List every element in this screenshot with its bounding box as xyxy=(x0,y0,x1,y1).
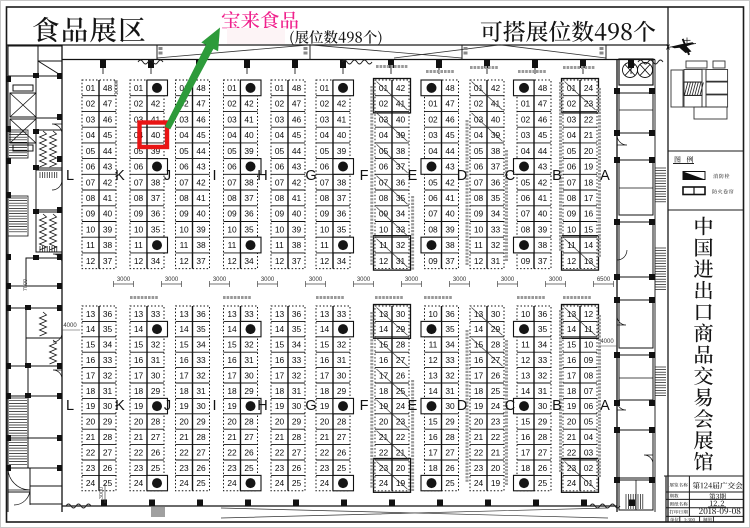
svg-text:23: 23 xyxy=(275,463,285,473)
svg-text:03: 03 xyxy=(320,114,330,124)
svg-text:42: 42 xyxy=(491,83,501,93)
svg-text:42: 42 xyxy=(538,177,548,187)
svg-text:17: 17 xyxy=(521,447,531,457)
svg-text:44: 44 xyxy=(103,146,113,156)
svg-text:34: 34 xyxy=(445,340,455,350)
svg-text:12: 12 xyxy=(134,256,144,266)
svg-text:42: 42 xyxy=(244,99,254,109)
svg-text:07: 07 xyxy=(227,177,237,187)
svg-text:06: 06 xyxy=(521,193,531,203)
svg-text:38: 38 xyxy=(244,177,254,187)
svg-text:02: 02 xyxy=(86,99,96,109)
svg-text:34: 34 xyxy=(491,209,501,219)
svg-text:25: 25 xyxy=(491,386,501,396)
svg-text:14: 14 xyxy=(275,324,285,334)
svg-text:05: 05 xyxy=(86,146,96,156)
svg-text:13: 13 xyxy=(134,309,144,319)
svg-text:36: 36 xyxy=(196,309,206,319)
svg-text:31: 31 xyxy=(538,386,548,396)
svg-text:18: 18 xyxy=(227,386,237,396)
svg-text:12: 12 xyxy=(379,256,389,266)
svg-text:13: 13 xyxy=(86,309,96,319)
svg-text:43: 43 xyxy=(538,162,548,172)
svg-text:33: 33 xyxy=(151,309,161,319)
svg-text:36: 36 xyxy=(244,209,254,219)
svg-text:20: 20 xyxy=(396,463,406,473)
svg-text:34: 34 xyxy=(337,256,347,266)
svg-text:37: 37 xyxy=(337,193,347,203)
svg-text:35: 35 xyxy=(337,224,347,234)
svg-text:03: 03 xyxy=(179,114,189,124)
svg-text:24: 24 xyxy=(584,83,594,93)
svg-text:36: 36 xyxy=(337,209,347,219)
svg-text:24: 24 xyxy=(134,478,144,488)
svg-text:17: 17 xyxy=(320,370,330,380)
svg-text:22: 22 xyxy=(275,447,285,457)
svg-text:31: 31 xyxy=(292,386,302,396)
svg-text:01: 01 xyxy=(428,99,438,109)
svg-text:15: 15 xyxy=(428,417,438,427)
svg-text:20: 20 xyxy=(320,417,330,427)
svg-text:22: 22 xyxy=(320,447,330,457)
svg-text:25: 25 xyxy=(196,478,206,488)
svg-text:23: 23 xyxy=(474,463,484,473)
svg-text:07: 07 xyxy=(179,177,189,187)
svg-text:11: 11 xyxy=(320,240,329,250)
svg-text:10000: 10000 xyxy=(114,80,120,95)
svg-text:24: 24 xyxy=(491,401,501,411)
svg-text:16: 16 xyxy=(584,209,594,219)
svg-text:47: 47 xyxy=(538,99,548,109)
svg-text:11: 11 xyxy=(521,340,530,350)
svg-text:01: 01 xyxy=(320,83,330,93)
svg-text:33: 33 xyxy=(445,355,455,365)
svg-text:03: 03 xyxy=(275,114,285,124)
svg-text:12: 12 xyxy=(474,256,484,266)
svg-text:22: 22 xyxy=(567,447,577,457)
svg-text:A: A xyxy=(600,398,610,414)
svg-text:17: 17 xyxy=(134,370,144,380)
svg-text:45: 45 xyxy=(196,130,206,140)
svg-text:J: J xyxy=(164,168,171,184)
svg-text:24: 24 xyxy=(474,478,484,488)
svg-text:30: 30 xyxy=(244,370,254,380)
svg-text:26: 26 xyxy=(292,463,302,473)
svg-text:16: 16 xyxy=(474,355,484,365)
svg-text:28: 28 xyxy=(491,340,501,350)
svg-text:07: 07 xyxy=(86,177,96,187)
svg-text:03: 03 xyxy=(584,447,594,457)
svg-text:22: 22 xyxy=(584,114,594,124)
svg-text:28: 28 xyxy=(103,432,113,442)
svg-text:13: 13 xyxy=(227,309,237,319)
svg-text:14: 14 xyxy=(428,386,438,396)
svg-text:21: 21 xyxy=(227,432,237,442)
svg-text:37: 37 xyxy=(196,256,206,266)
svg-text:10: 10 xyxy=(134,224,144,234)
svg-text:33: 33 xyxy=(292,355,302,365)
svg-text:18: 18 xyxy=(179,386,189,396)
svg-text:25: 25 xyxy=(103,478,113,488)
svg-text:24: 24 xyxy=(86,478,96,488)
svg-text:19: 19 xyxy=(584,162,594,172)
svg-text:05: 05 xyxy=(179,146,189,156)
svg-text:15: 15 xyxy=(567,340,577,350)
svg-text:17: 17 xyxy=(428,447,438,457)
svg-text:32: 32 xyxy=(337,340,347,350)
svg-text:21: 21 xyxy=(567,432,577,442)
svg-text:6500: 6500 xyxy=(597,277,611,283)
svg-text:07: 07 xyxy=(567,177,577,187)
svg-text:40: 40 xyxy=(396,114,406,124)
svg-text:31: 31 xyxy=(244,355,254,365)
svg-text:08: 08 xyxy=(227,193,237,203)
svg-text:31: 31 xyxy=(491,256,501,266)
svg-text:27: 27 xyxy=(151,432,161,442)
svg-text:05: 05 xyxy=(521,177,531,187)
svg-text:08: 08 xyxy=(474,193,484,203)
svg-text:13: 13 xyxy=(320,309,330,319)
svg-text:38: 38 xyxy=(196,240,206,250)
svg-text:08: 08 xyxy=(584,370,594,380)
svg-text:05: 05 xyxy=(474,146,484,156)
svg-text:18: 18 xyxy=(134,386,144,396)
svg-text:28: 28 xyxy=(151,417,161,427)
svg-text:16: 16 xyxy=(86,355,96,365)
svg-text:13: 13 xyxy=(428,370,438,380)
svg-text:37: 37 xyxy=(445,256,455,266)
svg-text:30: 30 xyxy=(445,401,455,411)
svg-text:04: 04 xyxy=(379,130,389,140)
svg-text:02: 02 xyxy=(584,463,594,473)
svg-text:27: 27 xyxy=(292,447,302,457)
svg-text:31: 31 xyxy=(445,386,455,396)
svg-text:11: 11 xyxy=(134,240,143,250)
svg-text:33: 33 xyxy=(337,309,347,319)
svg-text:D: D xyxy=(457,168,467,184)
svg-text:04: 04 xyxy=(227,130,237,140)
svg-text:27: 27 xyxy=(538,447,548,457)
svg-text:11: 11 xyxy=(86,240,95,250)
svg-text:32: 32 xyxy=(396,240,406,250)
svg-text:34: 34 xyxy=(538,340,548,350)
svg-text:10: 10 xyxy=(379,224,389,234)
svg-text:27: 27 xyxy=(445,447,455,457)
svg-text:07: 07 xyxy=(428,209,438,219)
svg-text:14: 14 xyxy=(134,324,144,334)
svg-text:10: 10 xyxy=(567,224,577,234)
svg-text:10: 10 xyxy=(584,340,594,350)
svg-text:27: 27 xyxy=(196,447,206,457)
svg-text:36: 36 xyxy=(396,177,406,187)
svg-text:11: 11 xyxy=(275,240,284,250)
svg-text:39: 39 xyxy=(337,146,347,156)
svg-text:3000: 3000 xyxy=(453,277,467,283)
svg-text:44: 44 xyxy=(292,146,302,156)
svg-text:07: 07 xyxy=(521,209,531,219)
svg-text:30: 30 xyxy=(151,370,161,380)
svg-text:28: 28 xyxy=(445,432,455,442)
svg-text:17: 17 xyxy=(567,370,577,380)
svg-text:01: 01 xyxy=(227,83,237,93)
svg-text:20: 20 xyxy=(567,417,577,427)
svg-text:02: 02 xyxy=(428,114,438,124)
svg-text:7000: 7000 xyxy=(23,279,29,291)
svg-text:30: 30 xyxy=(292,401,302,411)
svg-text:30: 30 xyxy=(196,401,206,411)
svg-text:20: 20 xyxy=(227,417,237,427)
svg-text:34: 34 xyxy=(103,340,113,350)
svg-text:23: 23 xyxy=(491,417,501,427)
svg-text:33: 33 xyxy=(244,309,254,319)
svg-text:04: 04 xyxy=(521,146,531,156)
svg-text:32: 32 xyxy=(491,240,501,250)
svg-text:14: 14 xyxy=(179,324,189,334)
svg-text:23: 23 xyxy=(179,463,189,473)
svg-text:20: 20 xyxy=(584,146,594,156)
svg-text:38: 38 xyxy=(151,177,161,187)
svg-text:03: 03 xyxy=(521,130,531,140)
svg-text:18: 18 xyxy=(584,177,594,187)
svg-text:40: 40 xyxy=(538,209,548,219)
svg-text:19: 19 xyxy=(134,401,144,411)
svg-text:08: 08 xyxy=(428,224,438,234)
svg-text:27: 27 xyxy=(337,432,347,442)
svg-text:23: 23 xyxy=(227,463,237,473)
svg-text:31: 31 xyxy=(103,386,113,396)
svg-text:33: 33 xyxy=(538,355,548,365)
svg-text:28: 28 xyxy=(337,417,347,427)
svg-text:06: 06 xyxy=(379,162,389,172)
svg-text:48: 48 xyxy=(103,83,113,93)
svg-text:3000: 3000 xyxy=(549,277,563,283)
svg-text:14: 14 xyxy=(584,240,594,250)
svg-text:28: 28 xyxy=(196,432,206,442)
svg-text:39: 39 xyxy=(538,224,548,234)
svg-text:09: 09 xyxy=(428,256,438,266)
svg-text:36: 36 xyxy=(103,309,113,319)
svg-text:24: 24 xyxy=(275,478,285,488)
svg-text:32: 32 xyxy=(292,370,302,380)
svg-text:02: 02 xyxy=(567,99,577,109)
svg-text:28: 28 xyxy=(538,432,548,442)
svg-text:22: 22 xyxy=(227,447,237,457)
svg-text:33: 33 xyxy=(103,355,113,365)
svg-text:09: 09 xyxy=(474,209,484,219)
svg-text:32: 32 xyxy=(103,370,113,380)
svg-text:04: 04 xyxy=(584,432,594,442)
svg-text:02: 02 xyxy=(320,99,330,109)
svg-text:36: 36 xyxy=(491,177,501,187)
svg-text:40: 40 xyxy=(244,130,254,140)
svg-text:34: 34 xyxy=(292,340,302,350)
svg-text:37: 37 xyxy=(103,256,113,266)
svg-text:46: 46 xyxy=(445,114,455,124)
svg-text:18: 18 xyxy=(521,463,531,473)
svg-text:18: 18 xyxy=(86,386,96,396)
svg-text:31: 31 xyxy=(337,355,347,365)
svg-text:10: 10 xyxy=(179,224,189,234)
svg-text:4000: 4000 xyxy=(600,339,614,345)
svg-text:12: 12 xyxy=(227,256,237,266)
svg-text:17: 17 xyxy=(584,193,594,203)
svg-text:23: 23 xyxy=(320,463,330,473)
svg-text:06: 06 xyxy=(320,162,330,172)
svg-text:A: A xyxy=(600,168,610,184)
svg-text:41: 41 xyxy=(103,193,113,203)
svg-text:31: 31 xyxy=(151,355,161,365)
svg-text:38: 38 xyxy=(103,240,113,250)
svg-text:16: 16 xyxy=(428,432,438,442)
svg-text:41: 41 xyxy=(538,193,548,203)
svg-text:L: L xyxy=(66,398,74,414)
svg-text:06: 06 xyxy=(86,162,96,172)
svg-text:38: 38 xyxy=(396,146,406,156)
svg-text:18: 18 xyxy=(320,386,330,396)
svg-text:10: 10 xyxy=(86,224,96,234)
svg-text:06: 06 xyxy=(428,193,438,203)
svg-text:03: 03 xyxy=(567,114,577,124)
svg-text:L: L xyxy=(66,168,74,184)
svg-text:22: 22 xyxy=(396,432,406,442)
svg-text:26: 26 xyxy=(151,447,161,457)
svg-text:34: 34 xyxy=(196,340,206,350)
svg-text:26: 26 xyxy=(337,447,347,457)
svg-text:35: 35 xyxy=(491,193,501,203)
svg-text:04: 04 xyxy=(320,130,330,140)
svg-text:32: 32 xyxy=(445,370,455,380)
svg-text:21: 21 xyxy=(179,432,189,442)
svg-text:16: 16 xyxy=(275,355,285,365)
svg-text:3000: 3000 xyxy=(261,277,275,283)
svg-text:17: 17 xyxy=(227,370,237,380)
svg-text:44: 44 xyxy=(445,146,455,156)
svg-text:21: 21 xyxy=(491,447,501,457)
svg-text:35: 35 xyxy=(103,324,113,334)
svg-text:E: E xyxy=(408,398,418,414)
svg-text:29: 29 xyxy=(337,386,347,396)
svg-text:44: 44 xyxy=(196,146,206,156)
svg-text:04: 04 xyxy=(567,130,577,140)
svg-text:3000: 3000 xyxy=(357,277,371,283)
svg-text:16: 16 xyxy=(521,432,531,442)
svg-text:04: 04 xyxy=(275,130,285,140)
svg-text:42: 42 xyxy=(445,177,455,187)
svg-text:42: 42 xyxy=(196,177,206,187)
svg-text:3000: 3000 xyxy=(99,487,105,499)
svg-text:24: 24 xyxy=(320,478,330,488)
svg-text:01: 01 xyxy=(86,83,96,93)
svg-text:23: 23 xyxy=(86,463,96,473)
svg-text:32: 32 xyxy=(244,340,254,350)
svg-text:21: 21 xyxy=(320,432,330,442)
svg-text:09: 09 xyxy=(179,209,189,219)
svg-text:19: 19 xyxy=(86,401,96,411)
svg-text:K: K xyxy=(115,168,125,184)
svg-text:05: 05 xyxy=(584,417,594,427)
svg-text:45: 45 xyxy=(292,130,302,140)
svg-text:08: 08 xyxy=(521,224,531,234)
svg-text:01: 01 xyxy=(275,83,285,93)
svg-text:45: 45 xyxy=(445,130,455,140)
svg-text:40: 40 xyxy=(337,130,347,140)
svg-text:16: 16 xyxy=(134,355,144,365)
svg-text:I: I xyxy=(212,168,216,184)
svg-text:20: 20 xyxy=(275,417,285,427)
svg-text:40: 40 xyxy=(103,209,113,219)
svg-text:12: 12 xyxy=(86,256,96,266)
svg-text:11: 11 xyxy=(429,340,438,350)
svg-text:21: 21 xyxy=(134,432,144,442)
svg-text:35: 35 xyxy=(196,324,206,334)
svg-text:30: 30 xyxy=(538,401,548,411)
svg-text:11: 11 xyxy=(474,240,483,250)
svg-text:30: 30 xyxy=(491,309,501,319)
svg-text:46: 46 xyxy=(538,114,548,124)
svg-text:08: 08 xyxy=(275,193,285,203)
svg-text:29: 29 xyxy=(103,417,113,427)
svg-text:28: 28 xyxy=(396,340,406,350)
svg-text:03: 03 xyxy=(227,114,237,124)
svg-text:18: 18 xyxy=(474,386,484,396)
svg-text:43: 43 xyxy=(196,162,206,172)
svg-text:06: 06 xyxy=(584,401,594,411)
svg-text:47: 47 xyxy=(445,99,455,109)
svg-text:18: 18 xyxy=(567,386,577,396)
svg-text:33: 33 xyxy=(491,224,501,234)
svg-text:3000: 3000 xyxy=(501,277,515,283)
svg-text:24: 24 xyxy=(396,401,406,411)
svg-text:21: 21 xyxy=(474,432,484,442)
svg-text:09: 09 xyxy=(275,209,285,219)
svg-text:10: 10 xyxy=(275,224,285,234)
svg-text:17: 17 xyxy=(275,370,285,380)
svg-text:24: 24 xyxy=(379,478,389,488)
svg-text:44: 44 xyxy=(538,146,548,156)
svg-text:42: 42 xyxy=(103,177,113,187)
svg-text:15: 15 xyxy=(521,417,531,427)
svg-text:J: J xyxy=(164,398,171,414)
svg-text:3000: 3000 xyxy=(165,277,179,283)
svg-text:25: 25 xyxy=(151,463,161,473)
svg-text:06: 06 xyxy=(567,162,577,172)
svg-text:B: B xyxy=(552,168,562,184)
svg-text:36: 36 xyxy=(292,309,302,319)
svg-text:06: 06 xyxy=(275,162,285,172)
svg-text:21: 21 xyxy=(86,432,96,442)
svg-text:3000: 3000 xyxy=(309,277,323,283)
svg-text:41: 41 xyxy=(244,114,254,124)
svg-text:26: 26 xyxy=(445,463,455,473)
svg-text:33: 33 xyxy=(196,355,206,365)
svg-text:37: 37 xyxy=(491,162,501,172)
svg-text:02: 02 xyxy=(275,99,285,109)
svg-text:32: 32 xyxy=(196,370,206,380)
svg-text:04: 04 xyxy=(86,130,96,140)
svg-text:43: 43 xyxy=(292,162,302,172)
svg-text:47: 47 xyxy=(196,99,206,109)
svg-text:15: 15 xyxy=(227,340,237,350)
svg-text:37: 37 xyxy=(292,256,302,266)
svg-text:15: 15 xyxy=(134,340,144,350)
svg-text:07: 07 xyxy=(584,386,594,396)
svg-text:19: 19 xyxy=(320,401,330,411)
svg-text:26: 26 xyxy=(538,463,548,473)
svg-text:35: 35 xyxy=(244,224,254,234)
svg-text:42: 42 xyxy=(396,83,406,93)
svg-text:24: 24 xyxy=(227,478,237,488)
svg-text:09: 09 xyxy=(134,209,144,219)
